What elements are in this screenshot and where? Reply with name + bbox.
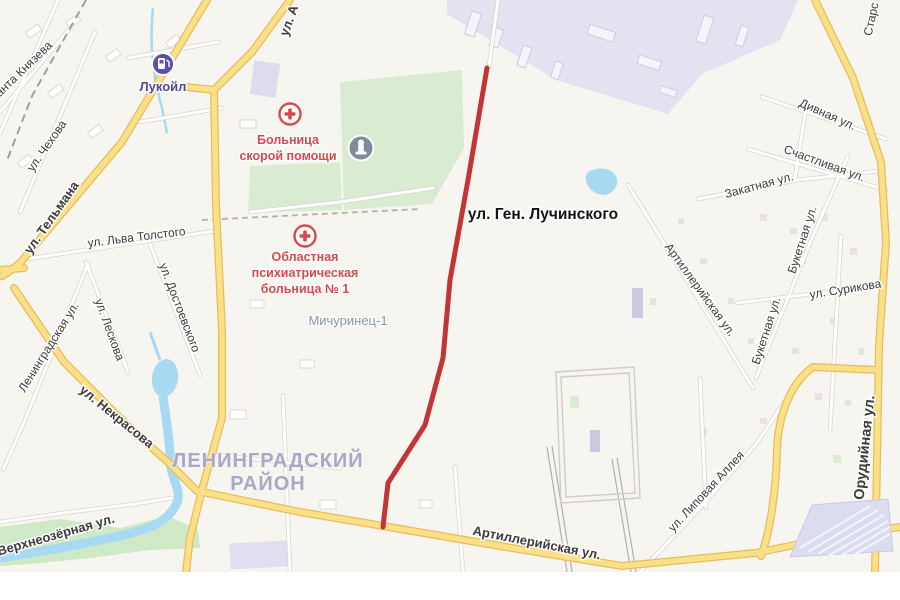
poi-monument[interactable]	[349, 136, 374, 161]
emergency-hospital-label-line1: Больница	[257, 133, 320, 147]
building-lavender-south	[229, 541, 288, 570]
lukoil-label: Лукойл	[140, 79, 187, 94]
psychiatric-hospital-label-line1: Областная	[272, 250, 339, 264]
psychiatric-hospital-label-line3: больница № 1	[261, 282, 350, 296]
map-canvas[interactable]: ул. А нанта Князева ул. Чехова ул. Тельм…	[0, 0, 900, 600]
psychiatric-hospital-label-line2: психиатрическая	[252, 266, 359, 280]
poi-fuel-lukoil[interactable]	[152, 53, 174, 75]
district-label-line1: ЛЕНИНГРАДСКИЙ	[172, 448, 363, 472]
building-lavender	[250, 60, 280, 97]
street-label-gen-luchinskogo: ул. Ген. Лучинского	[468, 206, 618, 223]
bottom-white-band	[0, 572, 900, 600]
poi-psychiatric-hospital[interactable]	[295, 226, 316, 247]
emergency-hospital-label-line2: скорой помощи	[239, 149, 336, 163]
neighborhood-label: Мичуринец-1	[308, 313, 387, 328]
map-viewport[interactable]: ул. А нанта Князева ул. Чехова ул. Тельм…	[0, 0, 900, 600]
poi-emergency-hospital[interactable]	[280, 104, 301, 125]
district-label-line2: РАЙОН	[230, 471, 305, 495]
